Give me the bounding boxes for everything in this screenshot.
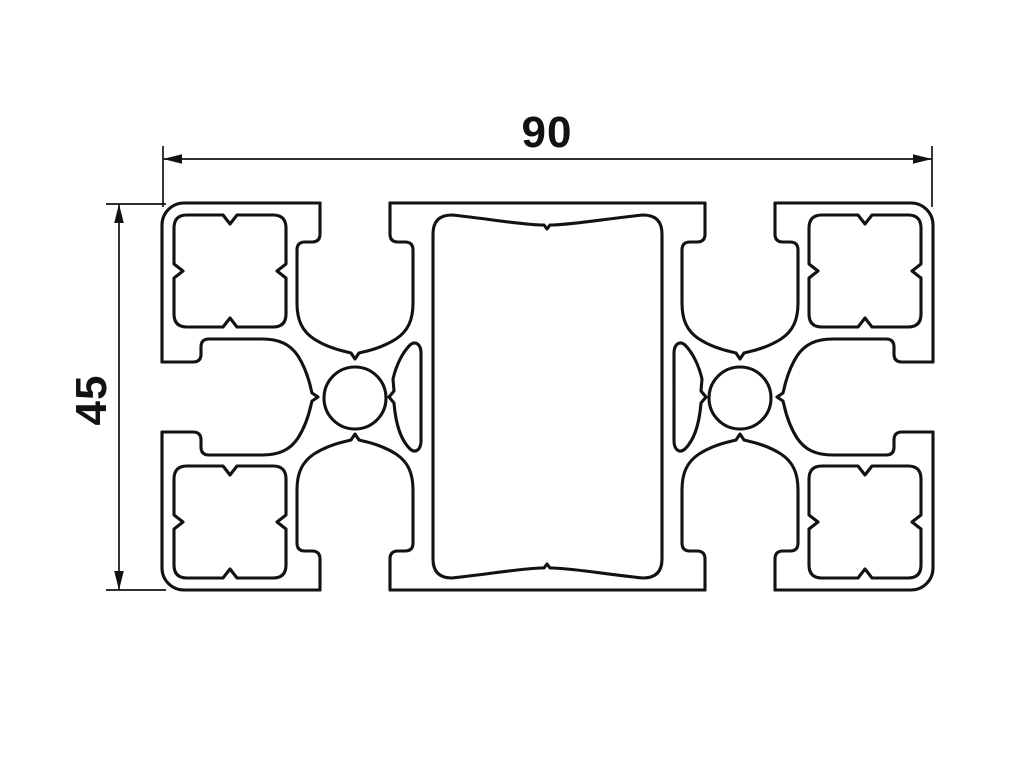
width-dim-arrow-right bbox=[913, 154, 932, 164]
corner-pocket-bottom-left bbox=[174, 466, 286, 578]
height-dim-arrow-top bbox=[114, 204, 124, 223]
crescent-cavity-right bbox=[674, 343, 706, 451]
slot-cavity-top-left bbox=[297, 203, 413, 359]
width-dimension: 90 bbox=[163, 108, 932, 207]
slot-cavity-right-face bbox=[777, 339, 933, 455]
width-dim-arrow-left bbox=[163, 154, 182, 164]
profile-drawing-svg: 90 45 bbox=[0, 0, 1024, 768]
core-hole-left bbox=[324, 367, 386, 429]
slot-cavity-bottom-left bbox=[297, 434, 413, 590]
height-dim-arrow-bottom bbox=[114, 571, 124, 590]
slot-cavity-bottom-right bbox=[682, 434, 798, 590]
profile-faces-outline bbox=[162, 203, 933, 590]
corner-pocket-top-right bbox=[809, 215, 921, 327]
height-dimension: 45 bbox=[67, 204, 166, 590]
width-dim-label: 90 bbox=[522, 108, 573, 157]
crescent-cavity-left bbox=[389, 343, 421, 451]
slot-cavity-top-right bbox=[682, 203, 798, 359]
corner-pocket-bottom-right bbox=[809, 466, 921, 578]
drawing-canvas: 90 45 bbox=[0, 0, 1024, 768]
core-hole-right bbox=[709, 367, 771, 429]
height-dim-label: 45 bbox=[67, 375, 116, 426]
slot-cavity-left-face bbox=[162, 339, 318, 455]
center-chamber-cavity bbox=[433, 215, 662, 578]
corner-pocket-top-left bbox=[174, 215, 286, 327]
